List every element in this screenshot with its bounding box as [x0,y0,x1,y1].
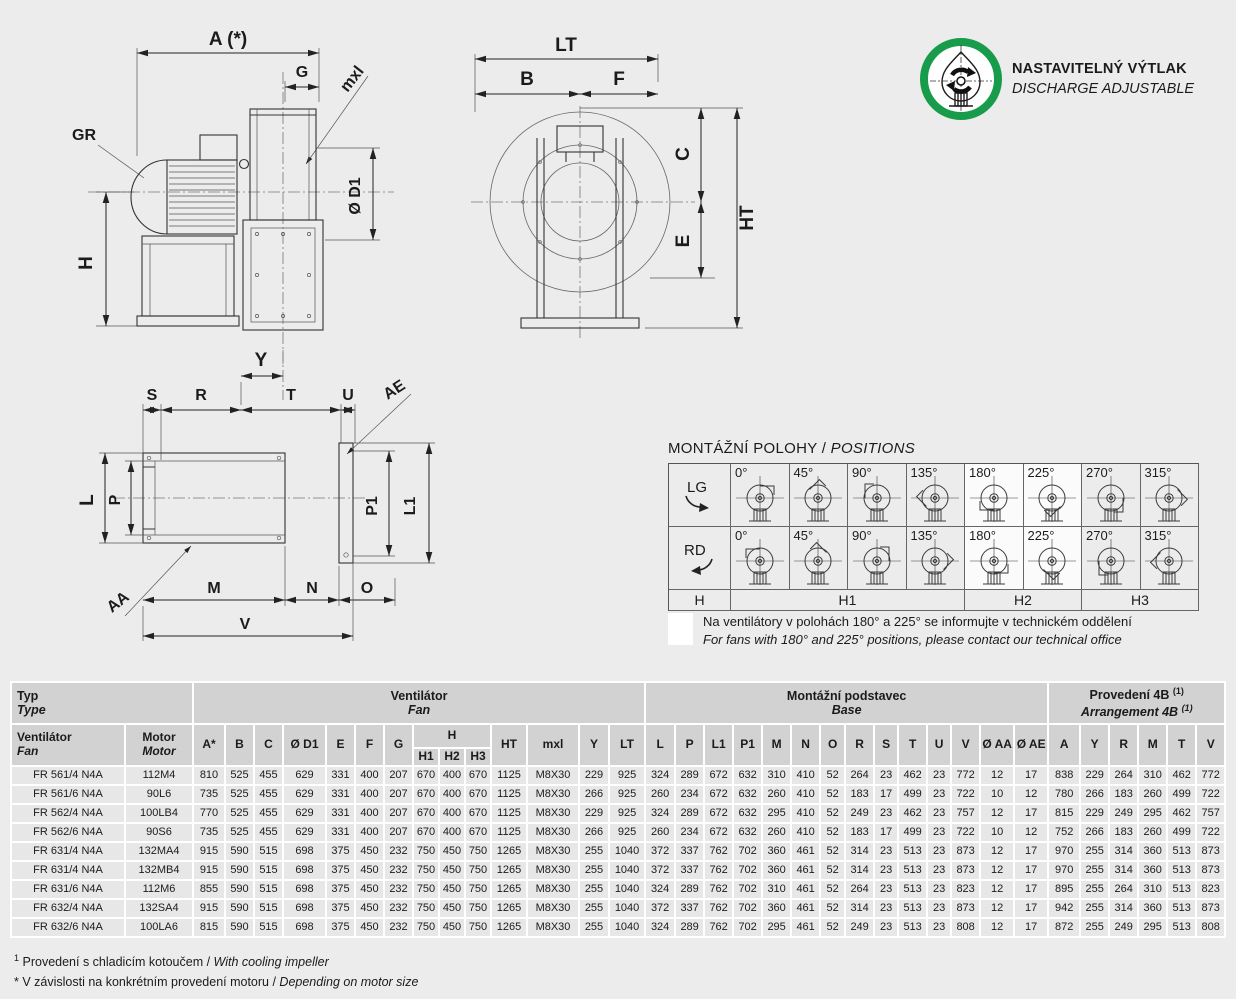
dimension-cell: 324 [646,805,674,822]
motor-outline [131,135,249,234]
dimension-cell: 255 [580,881,608,898]
position-angle-label: 270° [1086,465,1113,480]
position-cell-lg-0: 0° [731,464,790,527]
dimension-cell: 672 [705,786,732,803]
dimension-cell: 461 [792,919,819,936]
dimension-cell: 324 [646,919,674,936]
column-header: B [226,725,253,765]
dimension-cell: 266 [580,824,608,841]
position-angle-label: 225° [1028,465,1055,480]
column-header: mxl [528,725,578,765]
position-cell-rd-225: 225° [1024,527,1083,590]
position-angle-label: 180° [969,465,996,480]
table-group-header: Provedení 4B (1)Arrangement 4B (1) [1049,683,1224,723]
table-row: FR 562/4 N4A100LB47705254556293314002076… [12,805,1224,822]
dimension-cell: 314 [846,900,873,917]
dim-label-l1: L1 [402,497,419,516]
dim-label-g: G [296,64,308,81]
dimension-cell: 289 [676,919,703,936]
dimension-cell: M8X30 [528,881,578,898]
dimension-cell: 183 [1110,786,1137,803]
positions-title-sep: / [817,440,830,457]
dimension-cell: 762 [705,900,732,917]
dimension-cell: 515 [255,919,282,936]
column-header: A [1049,725,1079,765]
dim-label-c: C [673,147,694,161]
position-cell-lg-315: 315° [1141,464,1200,527]
dimension-cell: 499 [1168,824,1195,841]
dimension-cell: 12 [981,805,1013,822]
dimension-cell: 525 [226,767,253,784]
dimension-cell: 229 [580,805,608,822]
dimension-cell: 1265 [492,881,526,898]
dimension-cell: 52 [821,862,844,879]
column-header: C [255,725,282,765]
dimension-cell: 925 [610,805,644,822]
dimension-cell: 1125 [492,824,526,841]
position-cell-lg-45: 45° [790,464,849,527]
dimension-cell: 12 [1015,824,1047,841]
dimension-cell: 672 [705,824,732,841]
table-row: FR 632/4 N4A132SA49155905156983754502327… [12,900,1224,917]
dimension-cell: 372 [646,843,674,860]
dimension-cell: 23 [875,881,897,898]
fan-position-icon [734,538,786,588]
column-header: E [327,725,354,765]
dimension-cell: 750 [466,881,490,898]
dimension-cell: 52 [821,786,844,803]
dimension-cell: 672 [705,805,732,822]
dimension-cell: 249 [1110,805,1137,822]
dimension-cell: 772 [952,767,979,784]
positions-footer-h2: H2 [965,590,1082,611]
dimension-cell: 23 [875,805,897,822]
motor-cell: 112M4 [126,767,192,784]
dimension-cell: 1265 [492,843,526,860]
dimension-cell: 295 [1139,919,1166,936]
dimension-cell: 815 [194,919,224,936]
dimension-cell: 823 [1197,881,1224,898]
dimension-cell: 249 [846,805,873,822]
dimension-cell: 52 [821,767,844,784]
dimension-cell: 670 [466,786,490,803]
dimension-cell: 52 [821,824,844,841]
column-header: G [385,725,412,765]
dimension-cell: 722 [952,824,979,841]
column-header: Y [1081,725,1108,765]
dimension-cell: 632 [734,824,761,841]
positions-table: LG 0° 45° 90° [668,463,1199,611]
dimension-cell: 670 [466,767,490,784]
dimension-cell: 762 [705,881,732,898]
dimension-cell: 266 [580,786,608,803]
dimension-cell: 372 [646,900,674,917]
positions-note-cs: Na ventilátory v polohách 180° a 225° se… [703,613,1132,631]
dimension-cell: 260 [763,786,790,803]
column-header: T [1168,725,1195,765]
dimension-cell: 735 [194,786,224,803]
dimension-cell: 23 [928,843,950,860]
dimension-cell: 310 [1139,767,1166,784]
table-row: FR 631/4 N4A132MB49155905156983754502327… [12,862,1224,879]
dimension-cell: 670 [414,786,438,803]
dimension-cell: 1265 [492,919,526,936]
column-header-h-sub: H2 [440,749,464,765]
dimension-cell: 513 [1168,862,1195,879]
table-group-header: TypType [12,683,192,723]
dimension-cell: 23 [928,786,950,803]
dimension-cell: 970 [1049,843,1079,860]
dimension-cell: 375 [327,900,354,917]
dimension-cell: 629 [284,786,325,803]
fan-type-cell: FR 632/4 N4A [12,900,124,917]
dimension-cell: 410 [792,767,819,784]
badge-title-cs: NASTAVITELNÝ VÝTLAK [1012,61,1194,77]
column-header: Ø AE [1015,725,1047,765]
dimension-cell: 450 [440,881,464,898]
fan-position-icon [851,475,903,525]
dimension-cell: 513 [899,900,926,917]
dimension-cell: 873 [1197,862,1224,879]
dimension-cell: 289 [676,805,703,822]
catalog-page: A (*) G mxl GR [0,0,1236,999]
dimension-cell: 629 [284,824,325,841]
dimension-cell: 513 [899,881,926,898]
dimension-cell: 255 [1081,862,1108,879]
dim-label-n: N [306,580,318,597]
dimension-cell: 314 [846,843,873,860]
dimension-cell: 23 [928,862,950,879]
positions-footer-h: H [669,590,731,611]
dimension-cell: M8X30 [528,805,578,822]
dimension-cell: 255 [1081,900,1108,917]
dimension-cell: 1125 [492,786,526,803]
dimension-cell: 513 [899,919,926,936]
dimension-cell: 12 [981,900,1013,917]
position-cell-rd-90: 90° [848,527,907,590]
dimension-cell: 337 [676,900,703,917]
dimension-cell: 264 [1110,881,1137,898]
dimension-cell: 229 [1081,805,1108,822]
dimension-cell: 450 [440,843,464,860]
dimension-cell: 855 [194,881,224,898]
dimension-cell: 12 [981,919,1013,936]
dimension-cell: 461 [792,900,819,917]
dimension-cell: 762 [705,862,732,879]
fan-position-icon [1143,475,1195,525]
dimension-cell: 629 [284,805,325,822]
dimension-cell: 942 [1049,900,1079,917]
base-frame-outline [137,236,239,326]
svg-text:RD: RD [684,542,706,559]
dimension-cell: 513 [899,843,926,860]
dimension-cell: 266 [1081,786,1108,803]
dimension-cell: 970 [1049,862,1079,879]
dimension-cell: 324 [646,881,674,898]
dimension-cell: 702 [734,843,761,860]
dimension-cell: 873 [952,862,979,879]
dimension-cell: 234 [676,786,703,803]
table-row: FR 631/6 N4A112M685559051569837545023275… [12,881,1224,898]
dimension-cell: 1125 [492,767,526,784]
dimension-cell: 632 [734,767,761,784]
dimension-cell: 750 [466,900,490,917]
dimension-cell: 52 [821,843,844,860]
flange-plate-outline [339,443,353,563]
dimension-cell: 670 [466,824,490,841]
dimension-cell: 23 [928,767,950,784]
dimension-cell: 757 [1197,805,1224,822]
footnote-1: 1 Provedení s chladicím kotoučem / With … [14,952,418,973]
dimension-cell: 513 [1168,900,1195,917]
position-angle-label: 135° [911,528,938,543]
dimension-cell: 750 [414,881,438,898]
dimension-cell: 17 [1015,843,1047,860]
dimension-cell: 450 [356,900,383,917]
fan-logo-icon [918,36,1004,122]
dimension-cell: 762 [705,919,732,936]
column-header: L [646,725,674,765]
dimension-cell: M8X30 [528,862,578,879]
rotation-arrow-icon: RD [674,535,726,581]
dim-label-gr: GR [72,127,96,144]
column-header: A* [194,725,224,765]
positions-title: MONTÁŽNÍ POLOHY / POSITIONS [668,440,915,457]
dimension-cell: 750 [414,900,438,917]
dimension-cell: 525 [226,805,253,822]
motor-cell: 132MA4 [126,843,192,860]
motor-cell: 100LA6 [126,919,192,936]
position-angle-label: 0° [735,465,747,480]
dim-label-s: S [147,387,158,404]
dimension-cell: 702 [734,900,761,917]
fan-position-icon [1026,538,1078,588]
dimension-cell: 750 [414,862,438,879]
dimension-cell: 590 [226,862,253,879]
column-header: T [899,725,926,765]
dim-label-l: L [77,494,98,506]
fan-position-icon [968,475,1020,525]
fan-type-cell: FR 631/4 N4A [12,862,124,879]
dimension-cell: 12 [981,862,1013,879]
dimension-cell: 266 [1081,824,1108,841]
dimension-cell: 23 [928,824,950,841]
dimension-cell: 255 [580,843,608,860]
dimension-cell: 590 [226,900,253,917]
dimension-cell: 757 [952,805,979,822]
position-cell-rd-135: 135° [907,527,966,590]
dimension-cell: 255 [580,900,608,917]
highlight-legend-swatch [668,613,693,645]
column-header: Ø D1 [284,725,325,765]
fan-type-cell: FR 562/6 N4A [12,824,124,841]
fan-position-icon [1085,475,1137,525]
dimension-cell: 735 [194,824,224,841]
dimension-cell: 17 [1015,862,1047,879]
dimension-cell: 337 [676,862,703,879]
dimension-cell: 17 [1015,767,1047,784]
dimension-cell: 1040 [610,900,644,917]
dimension-cell: 672 [705,767,732,784]
dim-label-a: A (*) [209,29,247,50]
motor-cell: 132SA4 [126,900,192,917]
dimension-cell: 810 [194,767,224,784]
dimension-cell: M8X30 [528,767,578,784]
dimension-cell: 925 [610,824,644,841]
dimension-cell: 360 [763,900,790,917]
fan-position-icon [734,475,786,525]
column-header-motor: MotorMotor [126,725,192,765]
dimension-cell: 207 [385,805,412,822]
dim-label-m: M [207,580,220,597]
dimension-cell: 310 [1139,881,1166,898]
dimension-cell: 183 [1110,824,1137,841]
dimension-cell: 515 [255,843,282,860]
dimension-cell: 10 [981,824,1013,841]
position-angle-label: 45° [794,465,814,480]
dimension-cell: 23 [928,805,950,822]
dimension-cell: 1040 [610,919,644,936]
dimension-cell: 670 [414,805,438,822]
position-cell-rd-270: 270° [1082,527,1141,590]
position-cell-rd-315: 315° [1141,527,1200,590]
dimension-cell: 515 [255,881,282,898]
dimension-cell: 450 [356,843,383,860]
dimension-cell: 895 [1049,881,1079,898]
positions-footer-h1: H1 [731,590,965,611]
dimension-cell: 375 [327,862,354,879]
column-header: U [928,725,950,765]
dimension-cell: 838 [1049,767,1079,784]
dimension-cell: M8X30 [528,786,578,803]
dimension-cell: 750 [466,843,490,860]
column-header-h-sub: H1 [414,749,438,765]
dimension-cell: 232 [385,881,412,898]
fan-position-icon [909,538,961,588]
dim-label-ae: AE [381,377,409,404]
dimension-cell: 461 [792,843,819,860]
dimension-cell: 450 [356,862,383,879]
dimension-cell: 331 [327,805,354,822]
dim-label-t: T [286,387,296,404]
dim-label-d1: Ø D1 [347,177,364,214]
table-row: FR 631/4 N4A132MA49155905156983754502327… [12,843,1224,860]
dimension-cell: 1265 [492,900,526,917]
dimension-cell: 23 [875,900,897,917]
dimension-cell: 232 [385,919,412,936]
dimension-cell: 249 [1110,919,1137,936]
fan-position-icon [968,538,1020,588]
fan-position-icon [851,538,903,588]
dimension-cell: 229 [1081,767,1108,784]
dimension-cell: 23 [928,919,950,936]
dimension-cell: 925 [610,767,644,784]
position-angle-label: 270° [1086,528,1113,543]
fan-type-cell: FR 561/4 N4A [12,767,124,784]
table-group-header: VentilátorFan [194,683,644,723]
dimension-cell: 310 [763,881,790,898]
dimension-cell: 872 [1049,919,1079,936]
dimension-cell: 780 [1049,786,1079,803]
position-angle-label: 0° [735,528,747,543]
column-header: R [1110,725,1137,765]
dimension-cell: 722 [952,786,979,803]
dimension-cell: 331 [327,767,354,784]
dimension-cell: 462 [1168,767,1195,784]
dimension-cell: 183 [846,824,873,841]
dimension-cell: 873 [1197,900,1224,917]
dimension-cell: 915 [194,900,224,917]
dimension-cell: 873 [952,900,979,917]
dimension-cell: 525 [226,824,253,841]
dimension-cell: 450 [356,881,383,898]
dimension-cell: 450 [440,900,464,917]
column-header: Y [580,725,608,765]
column-header: M [763,725,790,765]
dimension-cell: 400 [356,767,383,784]
dimension-cell: 410 [792,786,819,803]
fan-type-cell: FR 632/6 N4A [12,919,124,936]
dimension-cell: 702 [734,862,761,879]
dimension-cell: 698 [284,900,325,917]
column-header: O [821,725,844,765]
dim-label-mxl: mxl [337,63,367,95]
dimension-cell: 255 [1081,919,1108,936]
dimension-cell: 314 [846,862,873,879]
dimension-cell: 255 [580,919,608,936]
dimension-cell: 770 [194,805,224,822]
dimension-cell: 255 [1081,881,1108,898]
dimension-cell: 400 [440,824,464,841]
table-row: FR 562/6 N4A90S6735525455629331400207670… [12,824,1224,841]
motor-cell: 112M6 [126,881,192,898]
dimension-cell: 513 [1168,881,1195,898]
dimension-cell: M8X30 [528,824,578,841]
fan-type-cell: FR 561/6 N4A [12,786,124,803]
dimension-cell: 260 [646,786,674,803]
dimension-cell: 207 [385,824,412,841]
dimension-cell: 722 [1197,786,1224,803]
dimension-cell: 295 [763,919,790,936]
positions-note-en: For fans with 180° and 225° positions, p… [703,631,1132,649]
table-group-header: Montážní podstavecBase [646,683,1047,723]
dimension-cell: 632 [734,786,761,803]
dimension-cell: 461 [792,862,819,879]
fan-position-icon [1085,538,1137,588]
dimension-cell: 12 [1015,786,1047,803]
footnotes: 1 Provedení s chladicím kotoučem / With … [14,952,418,992]
position-angle-label: 315° [1145,465,1172,480]
dimension-cell: 702 [734,881,761,898]
dimension-cell: 310 [763,767,790,784]
fan-position-icon [1143,538,1195,588]
footnote-2: * V závislosti na konkrétním provedení m… [14,973,418,992]
position-angle-label: 90° [852,465,872,480]
dimension-cell: 762 [705,843,732,860]
dimension-cell: 1040 [610,881,644,898]
dimension-cell: 375 [327,919,354,936]
fan-position-icon [792,475,844,525]
dimension-cell: 23 [875,919,897,936]
dim-label-v: V [240,616,251,633]
dimension-cell: 23 [875,767,897,784]
dimension-cell: 808 [1197,919,1224,936]
dimension-cell: 264 [1110,767,1137,784]
dimension-cell: M8X30 [528,919,578,936]
dimension-cell: 331 [327,824,354,841]
dimension-cell: 1265 [492,862,526,879]
dim-label-o: O [361,580,373,597]
